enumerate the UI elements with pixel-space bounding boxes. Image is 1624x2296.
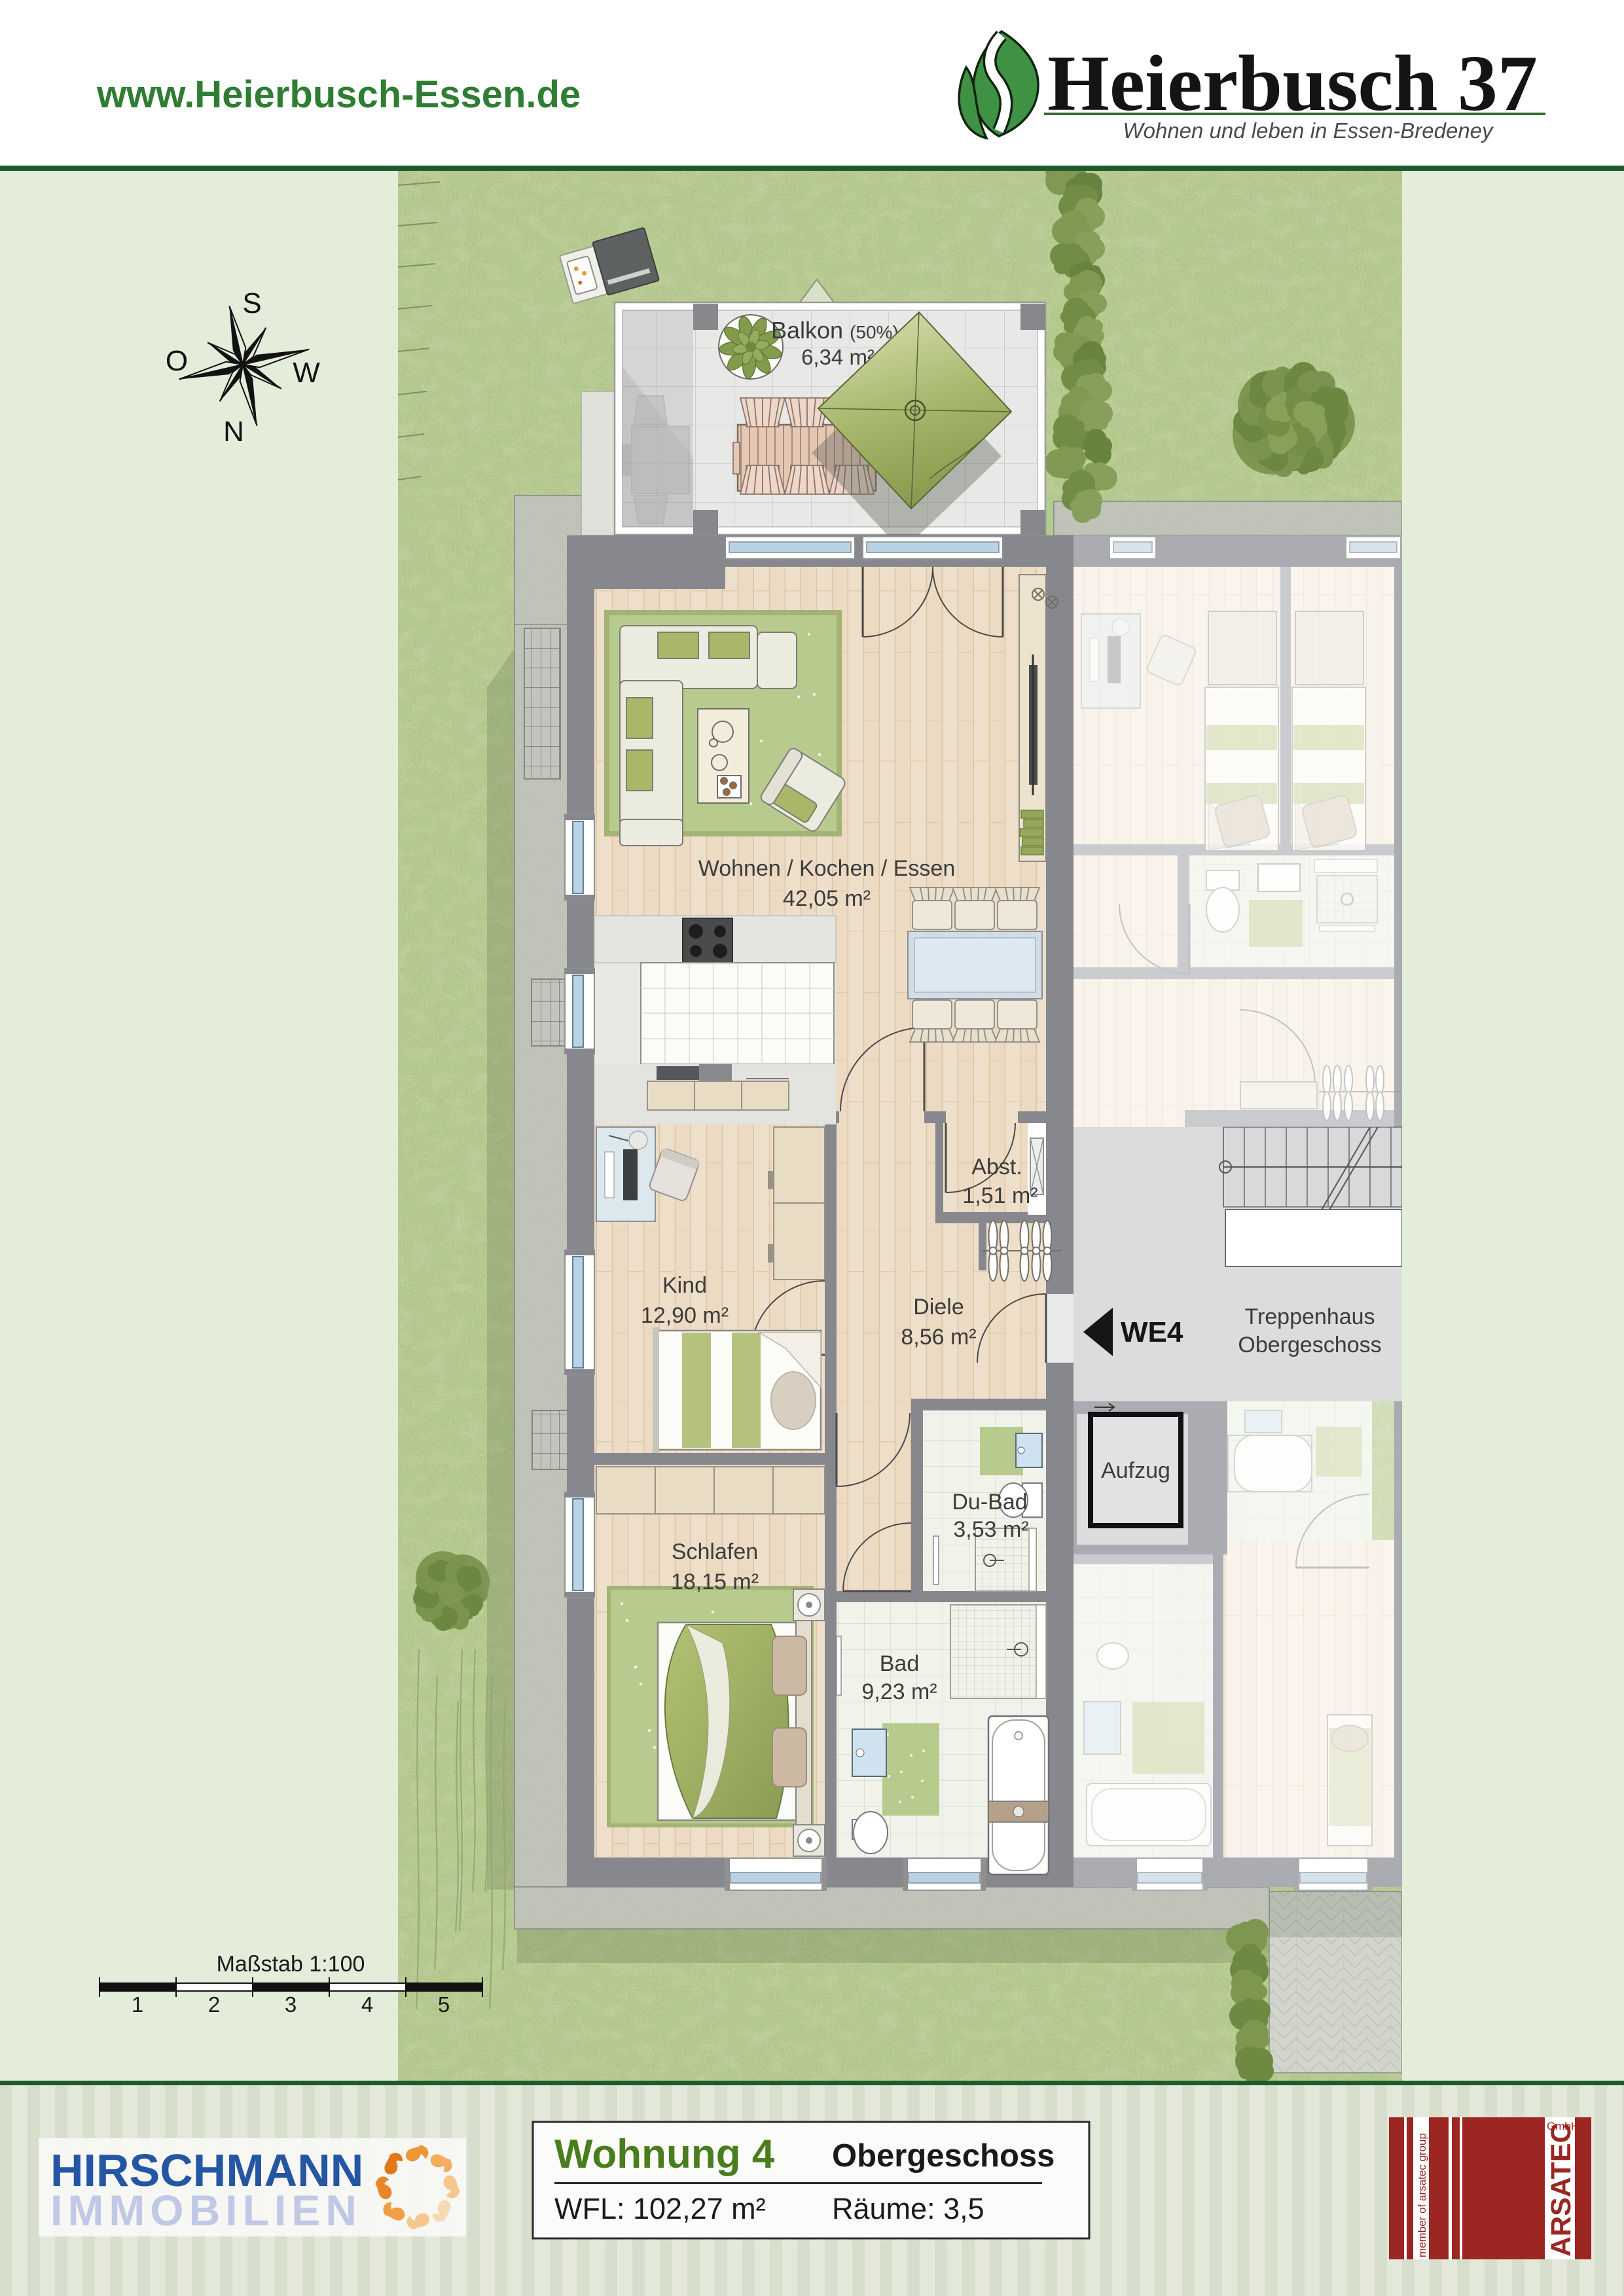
svg-text:1: 1 — [132, 1992, 143, 2017]
svg-text:www.Heierbusch-Essen.de: www.Heierbusch-Essen.de — [96, 73, 581, 116]
svg-text:18,15 m²: 18,15 m² — [671, 1570, 759, 1594]
svg-text:Schlafen: Schlafen — [672, 1539, 758, 1564]
svg-text:Kind: Kind — [662, 1273, 707, 1298]
svg-text:ARSATEC: ARSATEC — [1545, 2123, 1577, 2257]
svg-text:O: O — [166, 345, 188, 377]
svg-text:GmbH: GmbH — [1547, 2120, 1579, 2132]
svg-text:Aufzug: Aufzug — [1101, 1458, 1170, 1483]
svg-text:Wohnen / Kochen / Essen: Wohnen / Kochen / Essen — [698, 856, 956, 881]
svg-text:4: 4 — [361, 1992, 373, 2017]
svg-text:N: N — [223, 416, 244, 448]
svg-text:3,53 m²: 3,53 m² — [953, 1517, 1028, 1542]
svg-text:WE4: WE4 — [1121, 1316, 1183, 1348]
svg-text:Wohnen und leben in Essen-Bred: Wohnen und leben in Essen-Bredeney — [1123, 118, 1494, 143]
svg-text:12,90 m²: 12,90 m² — [641, 1303, 729, 1328]
svg-text:Du-Bad: Du-Bad — [952, 1490, 1027, 1515]
svg-text:Maßstab 1:100: Maßstab 1:100 — [217, 1952, 365, 1977]
svg-text:member of arsatec group: member of arsatec group — [1416, 2133, 1428, 2257]
svg-text:Abst.: Abst. — [971, 1155, 1022, 1179]
svg-text:Obergeschoss: Obergeschoss — [1238, 1333, 1381, 1357]
svg-text:Diele: Diele — [913, 1295, 964, 1319]
svg-text:5: 5 — [438, 1992, 450, 2017]
svg-text:42,05 m²: 42,05 m² — [783, 886, 871, 911]
svg-text:1,51 m²: 1,51 m² — [962, 1183, 1038, 1208]
svg-text:2: 2 — [208, 1992, 220, 2017]
svg-text:8,56 m²: 8,56 m² — [901, 1325, 976, 1350]
svg-text:Treppenhaus: Treppenhaus — [1244, 1304, 1375, 1329]
svg-text:3: 3 — [285, 1992, 297, 2017]
svg-text:S: S — [242, 287, 261, 319]
svg-text:W: W — [293, 357, 320, 389]
svg-text:WFL: 102,27 m²: WFL: 102,27 m² — [554, 2192, 766, 2225]
svg-text:9,23 m²: 9,23 m² — [861, 1679, 937, 1704]
svg-text:Obergeschoss: Obergeschoss — [832, 2138, 1055, 2174]
svg-text:Wohnung 4: Wohnung 4 — [554, 2132, 775, 2177]
svg-text:IMMOBILIEN: IMMOBILIEN — [50, 2186, 362, 2234]
svg-text:Räume: 3,5: Räume: 3,5 — [832, 2192, 984, 2225]
svg-text:Bad: Bad — [880, 1651, 920, 1676]
